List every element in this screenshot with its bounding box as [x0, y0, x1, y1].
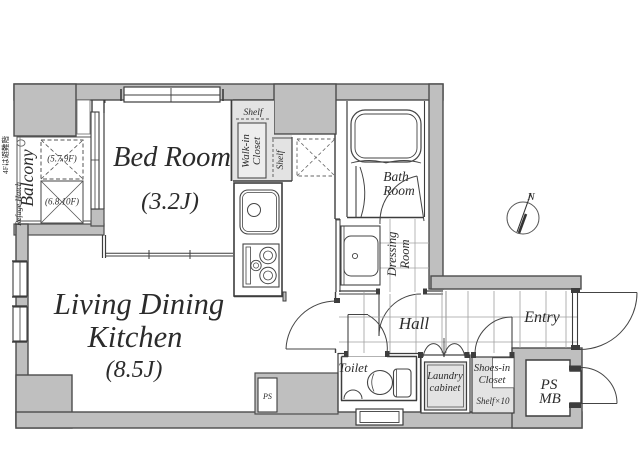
svg-text:Shelf×10: Shelf×10 — [476, 396, 510, 406]
svg-text:Shoes-in: Shoes-in — [474, 363, 510, 374]
svg-text:Room: Room — [398, 239, 412, 269]
svg-text:Closet: Closet — [251, 136, 263, 165]
svg-text:Shelf: Shelf — [275, 149, 286, 169]
svg-text:(6.8.10F): (6.8.10F) — [45, 197, 79, 207]
svg-text:Dressing: Dressing — [385, 232, 399, 278]
svg-text:(3.2J): (3.2J) — [141, 188, 199, 215]
svg-text:(5.7.9F): (5.7.9F) — [47, 154, 77, 164]
svg-text:Laundry: Laundry — [426, 371, 463, 382]
svg-text:Toilet: Toilet — [338, 360, 368, 375]
svg-text:N: N — [526, 191, 535, 203]
svg-text:Entry: Entry — [523, 309, 560, 326]
svg-text:Closet: Closet — [479, 375, 507, 386]
svg-text:Room: Room — [382, 183, 415, 198]
svg-text:cabinet: cabinet — [430, 383, 462, 394]
svg-text:Kitchen: Kitchen — [87, 320, 183, 354]
svg-text:Hall: Hall — [398, 314, 430, 333]
svg-text:Living Dining: Living Dining — [53, 287, 224, 321]
svg-text:(8.5J): (8.5J) — [106, 357, 163, 383]
svg-text:Refuge Hatch: Refuge Hatch — [14, 182, 23, 227]
svg-text:Bath: Bath — [383, 169, 409, 184]
svg-text:PS: PS — [262, 392, 272, 401]
svg-text:Bed Room: Bed Room — [113, 142, 231, 173]
svg-text:MB: MB — [538, 391, 561, 407]
svg-text:4Fは避難階: 4Fは避難階 — [0, 136, 10, 174]
svg-text:Shelf: Shelf — [244, 107, 264, 118]
